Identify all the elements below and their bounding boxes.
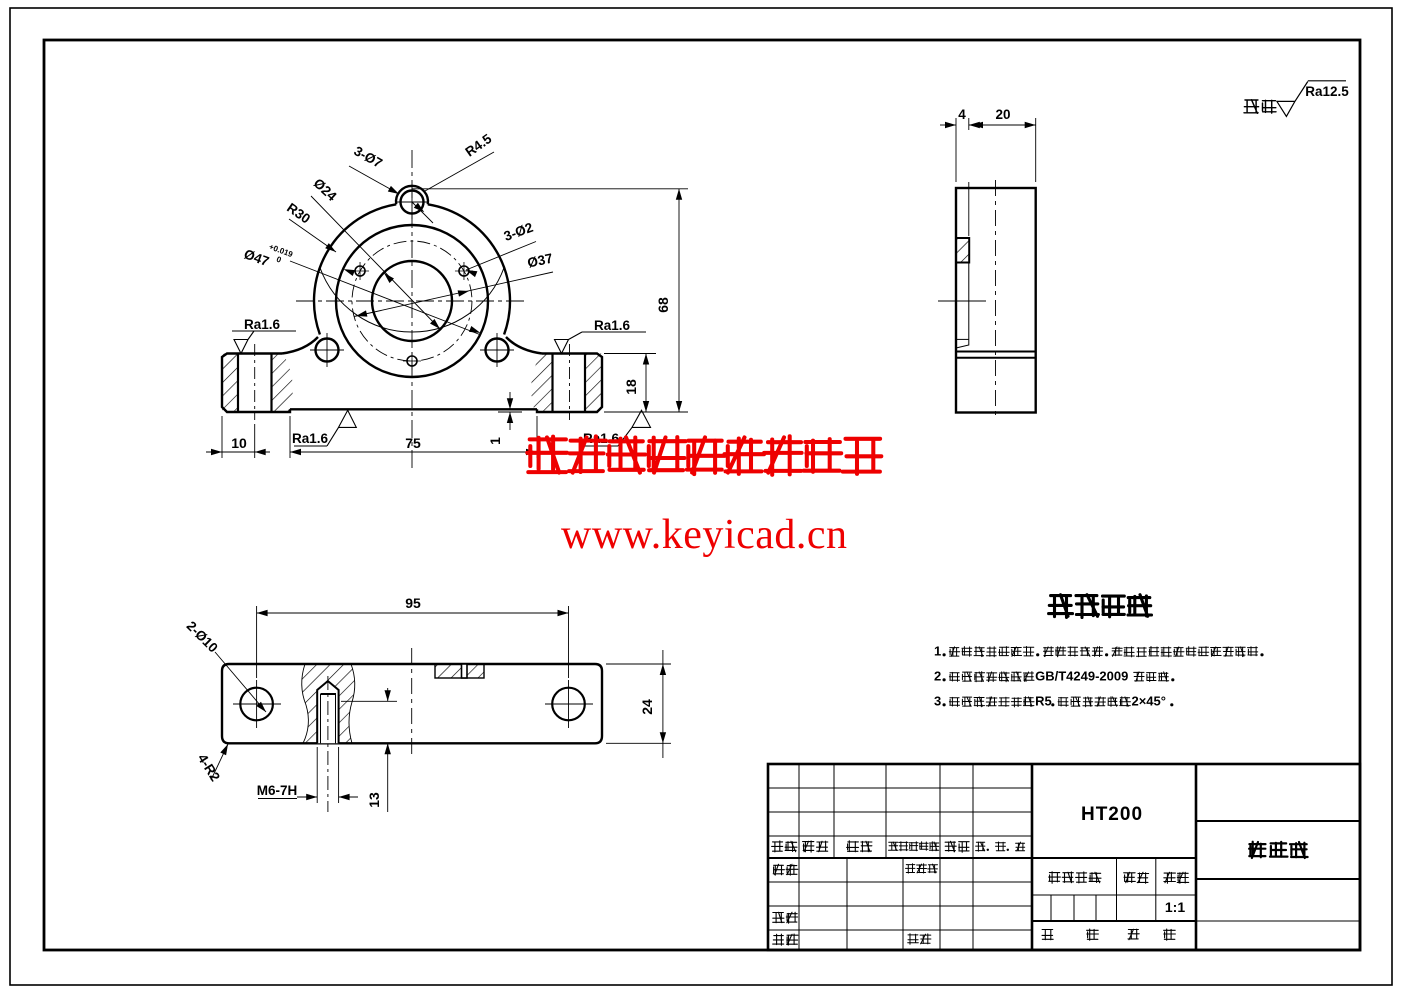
svg-text:Ra12.5: Ra12.5 [1305,84,1349,99]
svg-text:4: 4 [958,107,966,122]
svg-text:95: 95 [405,595,421,611]
svg-text:R5: R5 [1035,693,1052,708]
svg-text:M6-7H: M6-7H [257,783,298,798]
svg-text:18: 18 [623,379,639,395]
svg-text:1:1: 1:1 [1165,899,1185,915]
svg-text:Ra1.6: Ra1.6 [594,318,631,333]
svg-text:GB/T4249-2009: GB/T4249-2009 [1035,668,1128,683]
svg-text:10: 10 [231,435,247,451]
svg-text:2: 2 [934,668,941,683]
svg-text:Ra1.6: Ra1.6 [583,431,620,446]
svg-text:20: 20 [995,107,1010,122]
svg-text:1: 1 [487,437,503,445]
svg-text:1: 1 [934,643,941,658]
svg-text:75: 75 [405,435,421,451]
svg-text:www.keyicad.cn: www.keyicad.cn [561,512,848,558]
svg-text:24: 24 [639,699,655,715]
svg-text:68: 68 [655,297,671,313]
svg-text:2×45°: 2×45° [1131,693,1165,708]
svg-text:Ra1.6: Ra1.6 [292,431,329,446]
svg-text:Ra1.6: Ra1.6 [244,317,281,332]
svg-text:13: 13 [366,792,382,808]
svg-text:HT200: HT200 [1081,804,1143,825]
svg-text:3: 3 [934,693,941,708]
